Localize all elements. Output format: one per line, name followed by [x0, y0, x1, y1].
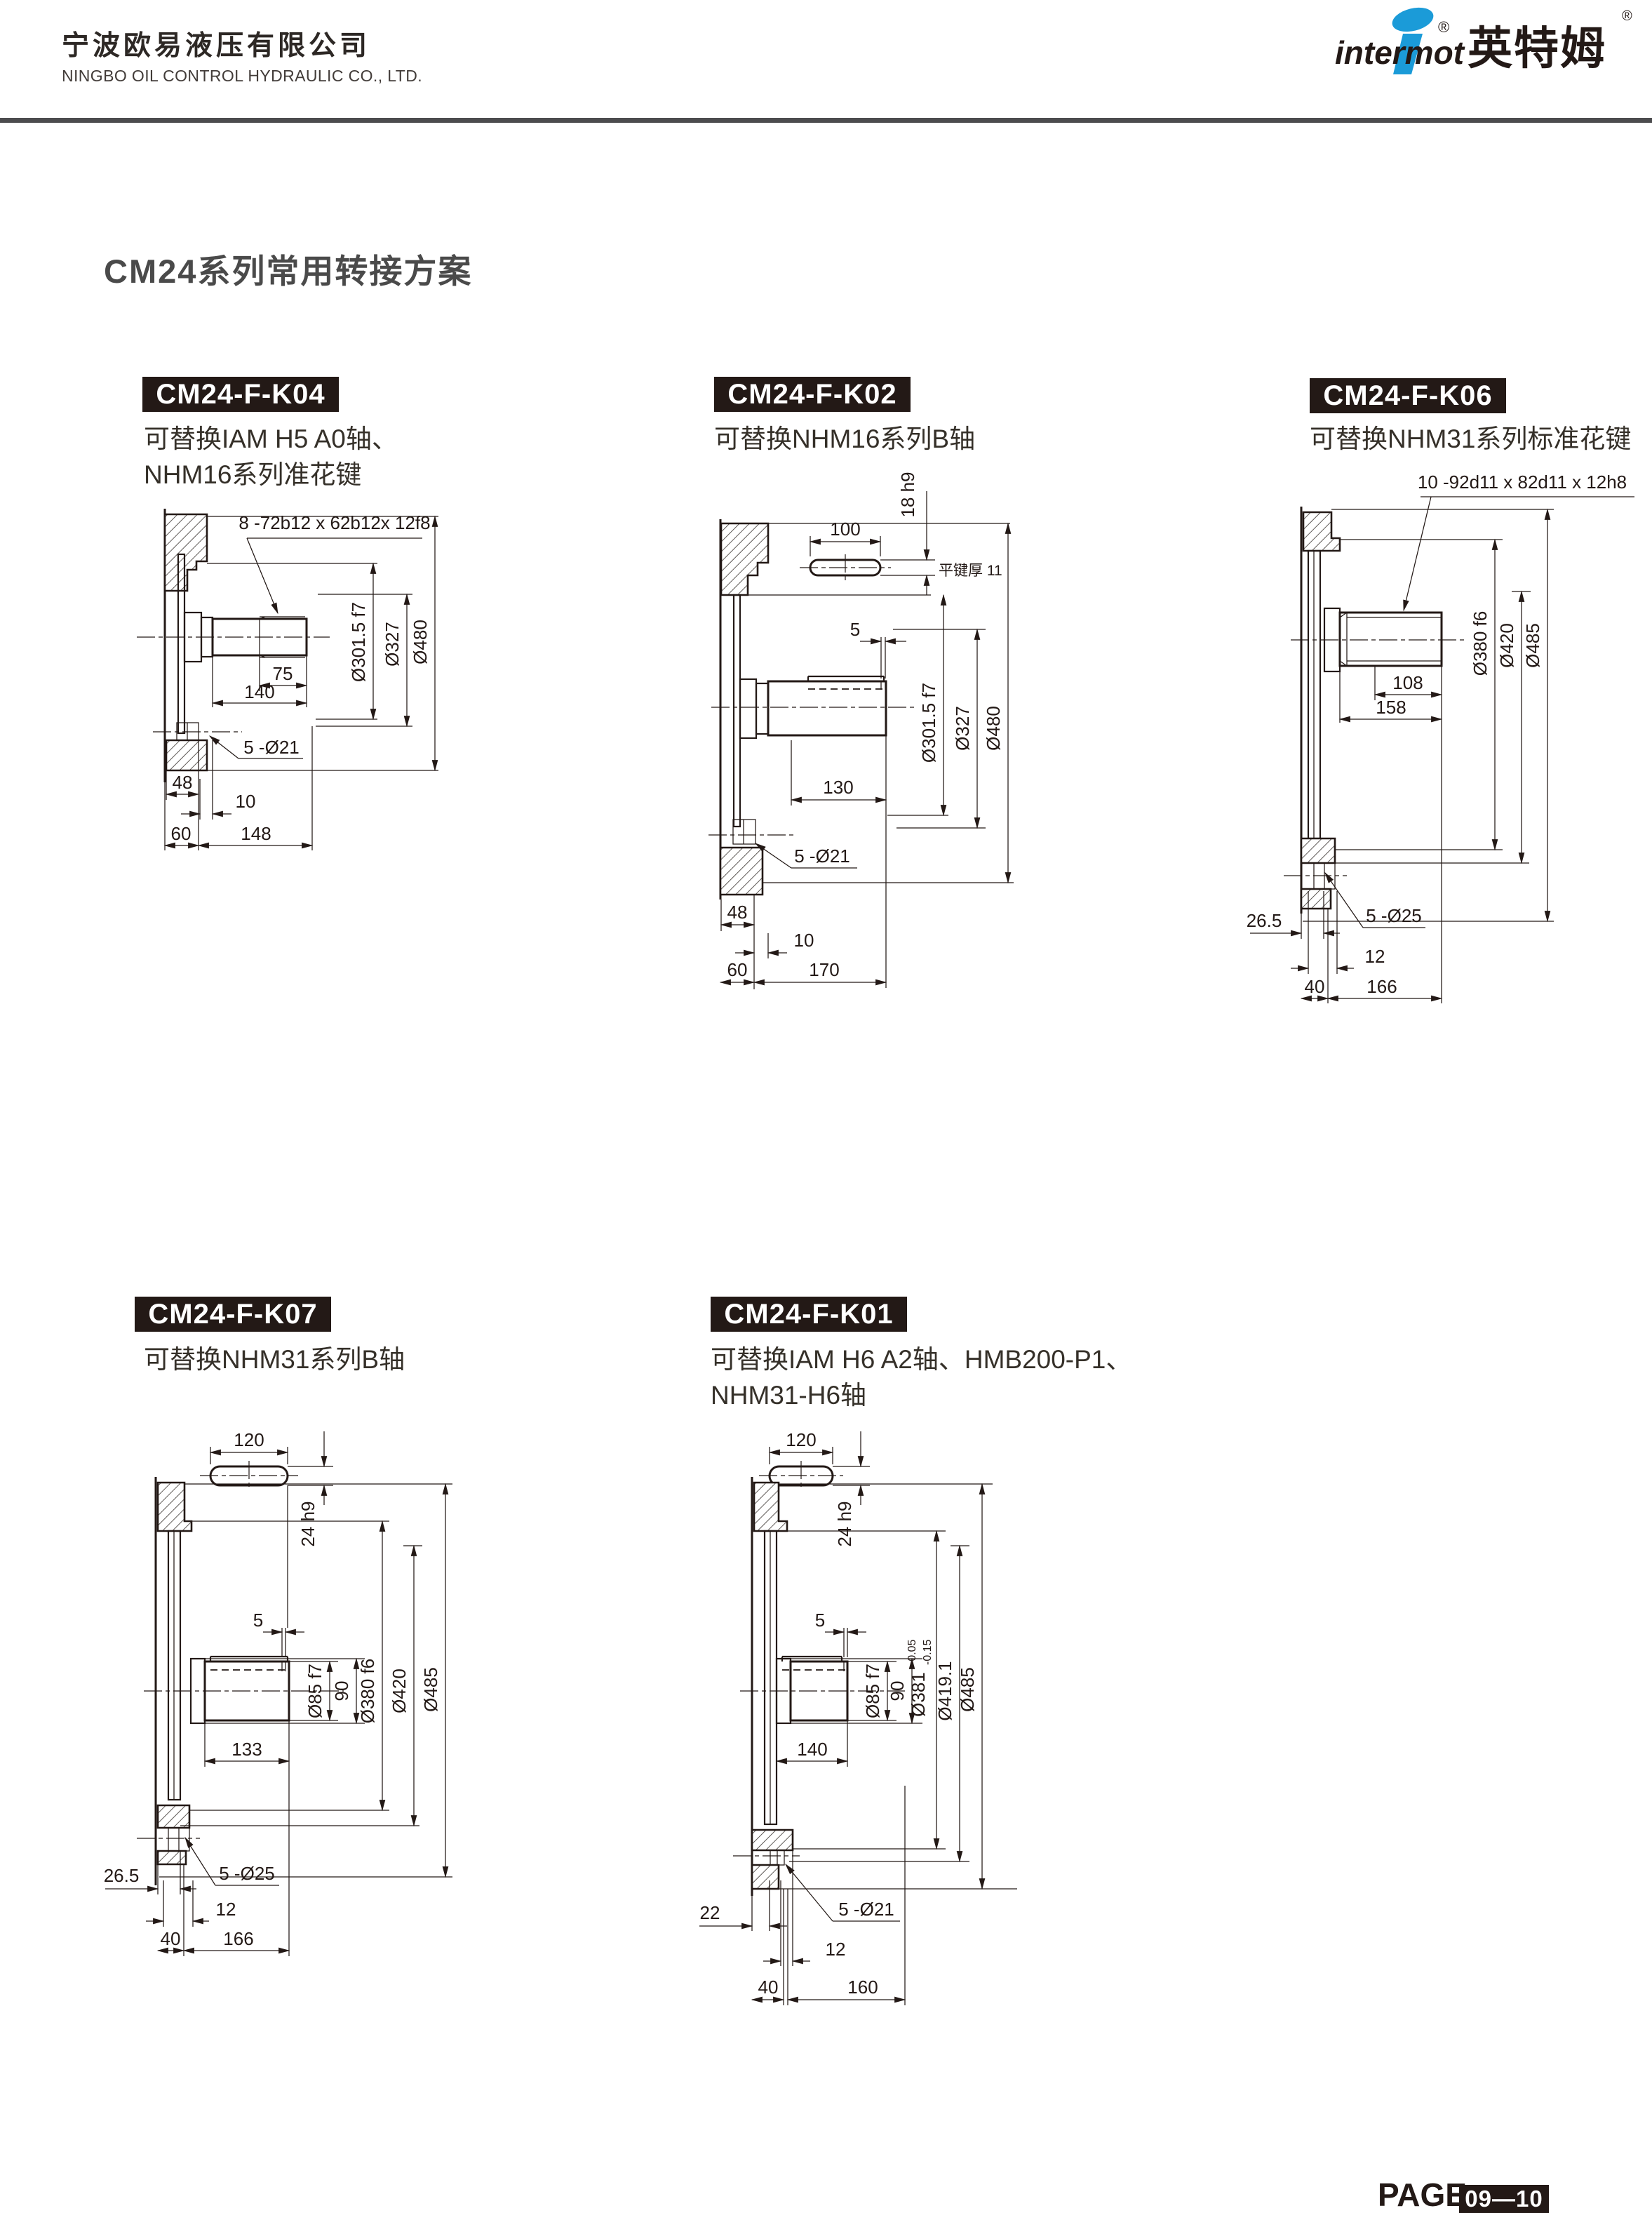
k04-holes: 5 -Ø21: [243, 737, 300, 758]
k07-f1: 26.5: [104, 1865, 140, 1886]
k01-dia1-tol-lo: -0.15: [922, 1639, 934, 1665]
catalog-page: 宁波欧易液压有限公司 NINGBO OIL CONTROL HYDRAULIC …: [0, 0, 1652, 2213]
k06-f3: 40: [1305, 976, 1325, 997]
header-divider: [0, 118, 1652, 123]
k01-holes: 5 -Ø21: [838, 1899, 894, 1920]
k06-len1: 108: [1392, 672, 1423, 693]
drawing-k02: 100 18 h9 平键厚 11 5 Ø301.5 f7 Ø327 Ø480 1…: [701, 442, 1108, 1003]
k07-f3: 40: [161, 1928, 181, 1949]
k01-dia2: Ø419.1: [934, 1661, 955, 1720]
k04-dia2: Ø327: [382, 622, 403, 667]
k04-len1: 75: [273, 663, 293, 684]
k01-f2: 12: [826, 1939, 846, 1960]
company-name-en: NINGBO OIL CONTROL HYDRAULIC CO., LTD.: [62, 67, 422, 86]
k02-key-len: 100: [830, 519, 860, 540]
desc-k04: 可替换IAM H5 A0轴、 NHM16系列准花键: [144, 421, 398, 493]
company-name-cn: 宁波欧易液压有限公司: [62, 24, 370, 63]
k02-key-w: 18 h9: [897, 472, 918, 517]
drawing-k07: 120 24 h9 5 Ø85 f7 90 Ø380 f6 Ø420 Ø485 …: [98, 1396, 561, 1965]
k02-f4: 170: [809, 959, 839, 980]
badge-k07: CM24-F-K07: [135, 1297, 331, 1332]
k07-dia3: Ø485: [420, 1667, 441, 1712]
k02-f3: 60: [727, 959, 748, 980]
page-title: CM24系列常用转接方案: [104, 244, 472, 293]
k07-dia2: Ø420: [389, 1669, 410, 1713]
k01-len2: 140: [797, 1739, 827, 1760]
k06-len2: 158: [1376, 697, 1406, 718]
brand-latin-text: intermot: [1335, 34, 1464, 72]
k06-flange: [1301, 507, 1340, 914]
k06-f4: 166: [1366, 976, 1397, 997]
k06-f1: 26.5: [1247, 910, 1282, 931]
k02-dia3: Ø480: [983, 706, 1004, 751]
k01-texts: 120 24 h9 5 Ø85 f7 90 Ø381 -0.05 -0.15 Ø…: [700, 1429, 978, 1998]
drawing-k06: 10 -92d11 x 82d11 x 12h8 Ø380 f6 Ø420 Ø4…: [1242, 442, 1652, 1010]
k06-dia3: Ø485: [1522, 623, 1543, 668]
k04-dia1: Ø301.5 f7: [348, 602, 369, 682]
desc-k04-line1: 可替换IAM H5 A0轴、: [144, 421, 398, 457]
brand-reg-mark: ®: [1438, 18, 1449, 36]
k04-dia3: Ø480: [410, 620, 431, 664]
k07-len2: 133: [231, 1739, 262, 1760]
k01-diaS2: 90: [887, 1681, 908, 1701]
k01-dia1-group: Ø381 -0.05 -0.15: [906, 1639, 934, 1716]
badge-k02: CM24-F-K02: [714, 377, 911, 412]
k01-f1: 22: [700, 1902, 720, 1923]
k02-dia1: Ø301.5 f7: [918, 683, 939, 763]
k02-groove: 5: [850, 619, 860, 640]
k04-len2: 140: [244, 681, 274, 702]
k01-f3: 40: [758, 1977, 779, 1998]
k06-dia1: Ø380 f6: [1470, 611, 1491, 676]
k01-dia1-tol-hi: -0.05: [906, 1639, 918, 1665]
k06-f2: 12: [1365, 946, 1385, 967]
k01-extension-lines: [752, 1484, 1017, 2005]
brand-logo: intermot ® 英特姆 ®: [1333, 0, 1652, 91]
desc-k07: 可替换NHM31系列B轴: [144, 1342, 405, 1377]
k07-flange: [156, 1477, 192, 1885]
k01-key-w: 24 h9: [834, 1501, 855, 1546]
badge-k06: CM24-F-K06: [1310, 378, 1506, 413]
k04-dimensions: [165, 516, 435, 845]
k06-dia2: Ø420: [1496, 623, 1517, 668]
k02-dimensions: [720, 523, 1008, 982]
k04-f2: 10: [236, 791, 256, 812]
footer-page-label: PAGE: [1378, 2176, 1467, 2213]
k02-key-note: 平键厚 11: [939, 563, 1002, 579]
k04-f4: 148: [241, 823, 271, 844]
k07-key-len: 120: [234, 1429, 264, 1450]
k04-f3: 60: [171, 823, 192, 844]
brand-cn-text: 英特姆: [1468, 13, 1606, 77]
k07-holes: 5 -Ø25: [219, 1863, 275, 1884]
footer-page-number: 09—10: [1459, 2185, 1549, 2213]
k01-f4: 160: [847, 1977, 878, 1998]
k04-texts: 8 -72b12 x 62b12x 12f8 Ø301.5 f7 Ø327 Ø4…: [171, 512, 431, 844]
k04-extension-lines: [165, 516, 438, 850]
k02-dia2: Ø327: [952, 706, 973, 751]
k06-spline-note: 10 -92d11 x 82d11 x 12h8: [1418, 472, 1627, 493]
k04-spline-note: 8 -72b12 x 62b12x 12f8: [239, 512, 430, 533]
k07-diaS: Ø85 f7: [304, 1664, 325, 1718]
k01-dia3: Ø485: [957, 1667, 978, 1712]
k06-shaft: [1284, 608, 1466, 876]
k07-key-w: 24 h9: [297, 1501, 318, 1546]
k07-groove: 5: [253, 1610, 263, 1631]
k06-holes: 5 -Ø25: [1366, 905, 1422, 926]
k01-groove: 5: [815, 1610, 825, 1631]
k04-f1: 48: [173, 772, 193, 793]
desc-k01-line1: 可替换IAM H6 A2轴、HMB200-P1、: [711, 1342, 1131, 1377]
k02-holes: 5 -Ø21: [794, 845, 850, 867]
drawing-k01: 120 24 h9 5 Ø85 f7 90 Ø381 -0.05 -0.15 Ø…: [673, 1396, 1038, 2014]
k07-dia1: Ø380 f6: [357, 1659, 378, 1724]
k07-f4: 166: [223, 1928, 253, 1949]
k02-f2: 10: [794, 930, 814, 951]
badge-k01: CM24-F-K01: [711, 1297, 907, 1332]
k07-texts: 120 24 h9 5 Ø85 f7 90 Ø380 f6 Ø420 Ø485 …: [104, 1429, 441, 1949]
k02-len2: 130: [823, 777, 853, 798]
k01-diaS: Ø85 f7: [862, 1664, 883, 1718]
k01-dimensions: [699, 1484, 982, 2000]
k07-diaS2: 90: [331, 1681, 352, 1701]
k01-dia1: Ø381: [908, 1672, 929, 1717]
drawing-k04: 8 -72b12 x 62b12x 12f8 Ø301.5 f7 Ø327 Ø4…: [98, 484, 463, 870]
k07-f2: 12: [216, 1899, 236, 1920]
brand-reg-mark-2: ®: [1622, 8, 1632, 25]
badge-k04: CM24-F-K04: [142, 377, 339, 412]
k06-extension-lines: [1301, 509, 1554, 1003]
k01-key-len: 120: [786, 1429, 816, 1450]
k02-f1: 48: [727, 902, 748, 923]
k07-extension-lines: [158, 1484, 452, 1956]
k01-flange: [752, 1477, 793, 1896]
